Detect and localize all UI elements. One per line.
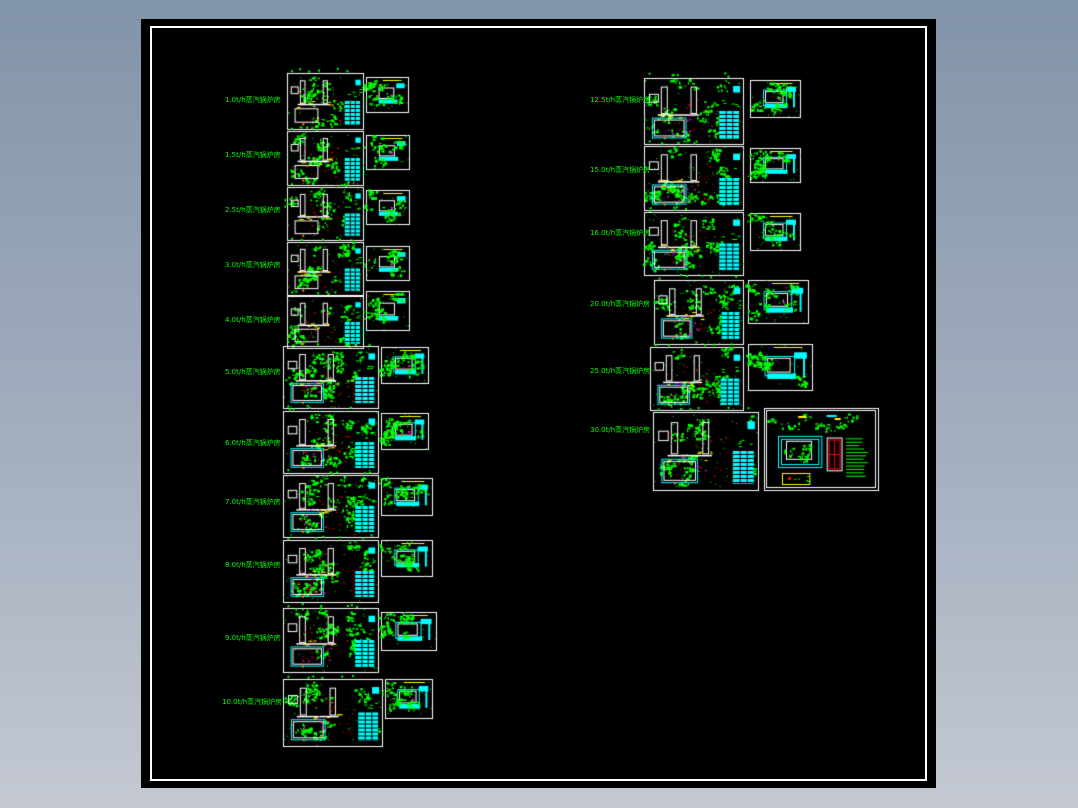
drawing-block-side-left-column-1[interactable] <box>366 77 408 112</box>
row-label-right-column-6[interactable]: 30.0t/h蒸汽锅炉房 <box>590 426 650 434</box>
drawing-block-main-right-column-4[interactable] <box>654 280 743 344</box>
row-label-left-column-5[interactable]: 4.0t/h蒸汽锅炉房 <box>225 316 281 324</box>
cad-viewport[interactable]: 1.0t/h蒸汽锅炉房1.5t/h蒸汽锅炉房2.5t/h蒸汽锅炉房3.0t/h蒸… <box>141 19 936 788</box>
drawing-block-side-left-column-8[interactable] <box>381 478 432 515</box>
drawing-block-main-left-column-7[interactable] <box>283 411 378 473</box>
drawing-block-side-left-column-5[interactable] <box>366 291 409 330</box>
row-label-left-column-6[interactable]: 5.0t/h蒸汽锅炉房 <box>225 368 281 376</box>
drawing-block-main-left-column-2[interactable] <box>287 131 363 185</box>
drawing-block-main-left-column-8[interactable] <box>283 475 378 537</box>
row-label-right-column-2[interactable]: 15.0t/h蒸汽锅炉房 <box>590 166 650 174</box>
drawing-block-main-left-column-10[interactable] <box>283 608 378 672</box>
drawing-block-main-right-column-5[interactable] <box>650 347 743 410</box>
row-label-right-column-5[interactable]: 25.0t/h蒸汽锅炉房 <box>590 367 650 375</box>
drawing-block-side-left-column-2[interactable] <box>366 135 409 169</box>
row-label-left-column-1[interactable]: 1.0t/h蒸汽锅炉房 <box>225 96 281 104</box>
row-label-left-column-11[interactable]: 10.0t/h蒸汽锅炉房 <box>222 698 282 706</box>
drawing-block-main-right-column-6[interactable] <box>653 412 758 490</box>
drawing-block-main-left-column-3[interactable] <box>287 187 363 240</box>
drawing-block-side-left-column-4[interactable] <box>366 246 409 280</box>
drawing-block-side-right-column-3[interactable] <box>750 213 800 250</box>
row-label-right-column-3[interactable]: 16.0t/h蒸汽锅炉房 <box>590 229 650 237</box>
row-label-left-column-10[interactable]: 9.0t/h蒸汽锅炉房 <box>225 634 281 642</box>
drawing-block-main-left-column-1[interactable] <box>287 73 363 129</box>
drawing-block-main-right-column-1[interactable] <box>644 78 743 144</box>
row-label-right-column-1[interactable]: 12.5t/h蒸汽锅炉房 <box>590 96 650 104</box>
drawing-block-side-left-column-7[interactable] <box>381 413 428 449</box>
row-label-left-column-9[interactable]: 8.0t/h蒸汽锅炉房 <box>225 561 281 569</box>
drawing-block-side-right-column-1[interactable] <box>750 80 800 117</box>
drawing-block-main-right-column-3[interactable] <box>644 212 743 275</box>
row-label-left-column-7[interactable]: 6.0t/h蒸汽锅炉房 <box>225 439 281 447</box>
drawing-block-side-left-column-6[interactable] <box>381 347 428 383</box>
drawing-block-main-left-column-6[interactable] <box>283 346 378 408</box>
drawing-block-side-left-column-9[interactable] <box>381 540 432 576</box>
drawing-block-main-left-column-4[interactable] <box>287 242 363 295</box>
row-label-left-column-8[interactable]: 7.0t/h蒸汽锅炉房 <box>225 498 281 506</box>
drawing-block-main-left-column-9[interactable] <box>283 540 378 602</box>
drawing-block-side-right-column-5[interactable] <box>748 344 812 390</box>
drawing-block-main-left-column-5[interactable] <box>287 296 363 348</box>
row-label-left-column-3[interactable]: 2.5t/h蒸汽锅炉房 <box>225 206 281 214</box>
drawing-block-main-left-column-11[interactable] <box>283 679 382 746</box>
drawing-block-wide-right-column-6[interactable] <box>764 408 878 490</box>
drawing-block-main-right-column-2[interactable] <box>644 146 743 210</box>
row-label-right-column-4[interactable]: 20.0t/h蒸汽锅炉房 <box>590 300 650 308</box>
drawing-block-side-left-column-10[interactable] <box>381 612 436 650</box>
drawing-block-side-left-column-3[interactable] <box>366 190 409 224</box>
drawing-block-side-right-column-2[interactable] <box>750 148 800 182</box>
drawing-block-side-left-column-11[interactable] <box>385 679 432 718</box>
desktop-background: { "background": { "gradient_top": "#8294… <box>0 0 1078 808</box>
cad-canvas[interactable] <box>141 19 936 788</box>
row-label-left-column-2[interactable]: 1.5t/h蒸汽锅炉房 <box>225 151 281 159</box>
row-label-left-column-4[interactable]: 3.0t/h蒸汽锅炉房 <box>225 261 281 269</box>
drawing-block-side-right-column-4[interactable] <box>748 280 808 323</box>
